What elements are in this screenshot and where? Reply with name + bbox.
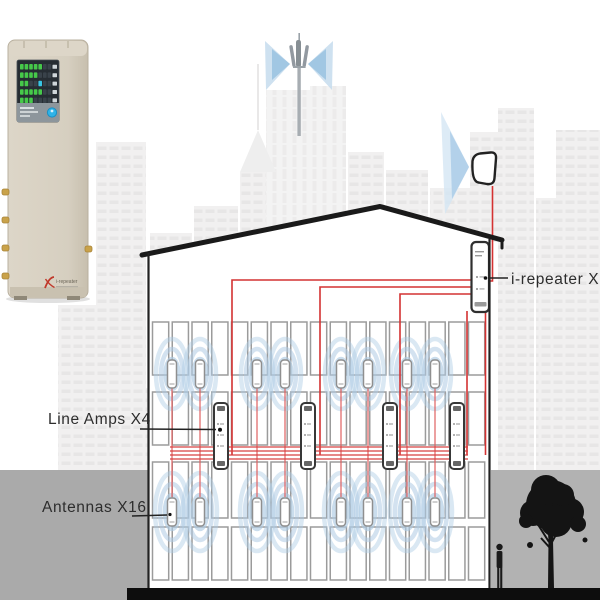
device-bottom-strip (10, 287, 86, 297)
led-segment (29, 81, 33, 87)
label-line-amps-connector (140, 429, 216, 430)
line-amplifier (301, 403, 315, 469)
led-segment (29, 89, 33, 95)
power-button (47, 108, 56, 117)
led-segment (43, 81, 47, 87)
window (311, 527, 327, 580)
tower-signal-left-icon (265, 41, 290, 90)
led-segment (25, 72, 29, 78)
led-row-label (53, 90, 58, 94)
led-row-label (53, 65, 58, 69)
window (469, 462, 485, 518)
led-segment (43, 98, 47, 104)
device-logo-text: i-repeater (56, 279, 78, 285)
led-row-label (53, 73, 58, 77)
indoor-antenna (403, 498, 412, 526)
led-segment (20, 98, 24, 104)
window (449, 527, 465, 580)
ground-line (127, 588, 600, 600)
diagram-canvas: i-repeater X1 Line Amps X4 Antennas X16 (0, 0, 600, 600)
led-segment (48, 89, 52, 95)
led-segment (38, 64, 42, 70)
indoor-antenna (364, 498, 373, 526)
window (469, 527, 485, 580)
indoor-antenna (403, 360, 412, 388)
tower-signal-right-icon (308, 41, 333, 90)
led-segment (20, 81, 24, 87)
window (469, 322, 485, 375)
led-segment (43, 72, 47, 78)
rf-connector-right (85, 246, 92, 252)
led-segment (25, 89, 29, 95)
led-segment (25, 64, 29, 70)
led-segment (48, 81, 52, 87)
indoor-antenna (364, 360, 373, 388)
line-amps-label-text: Line Amps X4 (48, 411, 151, 428)
led-row-label (53, 82, 58, 86)
indoor-antenna (168, 498, 177, 526)
led-segment (34, 98, 38, 104)
led-segment (38, 98, 42, 104)
led-segment (34, 64, 38, 70)
led-segment (43, 89, 47, 95)
indoor-antenna (431, 360, 440, 388)
led-segment (43, 64, 47, 70)
led-segment (34, 72, 38, 78)
led-segment (29, 98, 33, 104)
led-segment (38, 81, 42, 87)
indoor-antenna (431, 498, 440, 526)
led-segment (25, 81, 29, 87)
led-segment (20, 72, 24, 78)
repeater-label-text: i-repeater X1 (511, 271, 600, 288)
led-segment (48, 72, 52, 78)
led-segment (38, 72, 42, 78)
indoor-antenna (196, 360, 205, 388)
line-amplifier (450, 403, 464, 469)
led-segment (25, 98, 29, 104)
indoor-antenna (281, 498, 290, 526)
label-antennas-connector (132, 515, 167, 516)
line-amplifier (383, 403, 397, 469)
led-segment (34, 89, 38, 95)
device-top-cap (9, 41, 87, 56)
indoor-antenna (253, 498, 262, 526)
indoor-antenna (196, 498, 205, 526)
led-segment (29, 64, 33, 70)
led-segment (20, 64, 24, 70)
line-amplifier (214, 403, 228, 469)
antennas-label-text: Antennas X16 (42, 499, 147, 516)
led-segment (34, 81, 38, 87)
ground-left (0, 470, 148, 600)
indoor-antenna (337, 360, 346, 388)
repeater-system-diagram: i-repeater X1 Line Amps X4 Antennas X16 (0, 0, 600, 600)
led-segment (38, 89, 42, 95)
indoor-antenna (168, 360, 177, 388)
led-segment (20, 89, 24, 95)
indoor-antenna (337, 498, 346, 526)
led-row-label (53, 98, 58, 102)
window (469, 392, 485, 445)
indoor-antenna (253, 360, 262, 388)
led-segment (48, 64, 52, 70)
led-segment (29, 72, 33, 78)
led-segment (48, 98, 52, 104)
indoor-antenna (281, 360, 290, 388)
repeater-device-photo: i-repeater (2, 40, 92, 303)
